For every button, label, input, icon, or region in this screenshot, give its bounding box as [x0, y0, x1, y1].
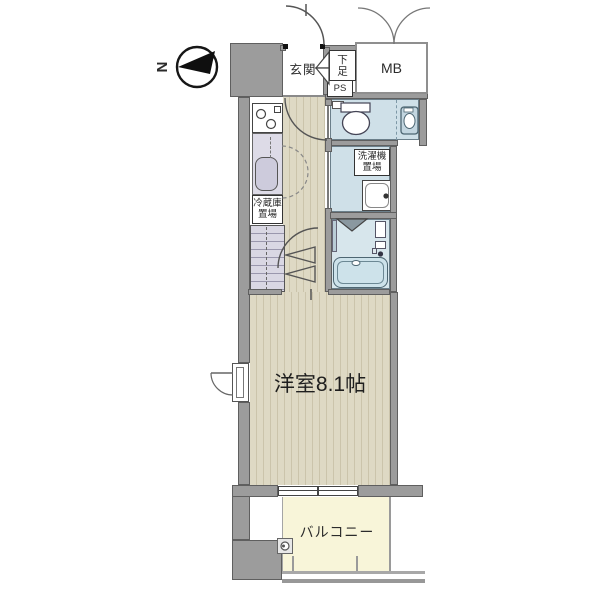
entrance-door-jamb-right	[320, 44, 325, 49]
window-swing-arc	[211, 373, 233, 395]
hallway-floor	[283, 97, 325, 295]
kitchen-sink-icon	[255, 157, 278, 191]
entrance-label: 玄関	[283, 60, 323, 76]
wall-room-top-right	[328, 289, 390, 295]
wall-hall-a	[325, 99, 332, 106]
bathtub-inner	[337, 261, 384, 284]
refrigerator-label-line2: 置場	[258, 209, 277, 220]
meter-box-door-right-arc	[394, 8, 430, 44]
closet	[250, 225, 285, 292]
meter-box: MB	[355, 42, 428, 94]
balcony-railing	[282, 571, 425, 574]
refrigerator-label-line1: 冷蔵庫	[253, 198, 282, 209]
closet-dash-line	[266, 227, 267, 290]
compass-circle	[177, 47, 217, 87]
stove-grill-icon	[274, 106, 281, 113]
main-room-label-text: 洋室8.1帖	[274, 368, 366, 398]
washing-machine-space: 洗濯機 置場	[354, 149, 390, 176]
pipe-space-label: PS	[334, 83, 347, 94]
meter-box-door-left-arc	[358, 8, 394, 44]
balcony-post-right	[356, 556, 358, 572]
bath-cabinet-icon	[375, 221, 386, 238]
shoe-cabinet-label: 下足	[335, 54, 350, 77]
washing-machine-label-line2: 置場	[362, 162, 381, 173]
wall-hall-b	[325, 138, 332, 152]
wall-left-upper	[238, 97, 250, 363]
refrigerator-space: 冷蔵庫 置場	[252, 195, 283, 224]
compass-needle-icon	[178, 51, 215, 74]
wall-room-top-left	[248, 289, 282, 295]
left-window-inner	[236, 367, 244, 398]
wall-under-room-left	[232, 485, 278, 497]
balcony-post-left	[292, 556, 294, 572]
bath-mirror-icon	[332, 220, 337, 252]
shoe-cabinet: 下足	[329, 50, 356, 81]
entrance-step-line	[283, 95, 325, 97]
balcony-window-tick	[317, 486, 319, 496]
wall-bottom-left-block	[232, 540, 282, 580]
meter-box-label: MB	[381, 60, 402, 76]
bath-handle-icon	[372, 248, 377, 254]
wall-right-mid	[390, 146, 397, 292]
washing-machine-label-line1: 洗濯機	[358, 151, 387, 162]
entrance-door-jamb-left	[283, 44, 288, 49]
pipe-space: PS	[327, 79, 353, 97]
compass-north-label: N	[152, 57, 172, 77]
entrance-label-text: 玄関	[289, 59, 316, 78]
balcony-label: バルコニー	[282, 523, 392, 541]
wall-hall-c	[325, 208, 332, 292]
counter-dash-line	[270, 137, 271, 158]
toilet-shelf-icon	[332, 101, 344, 109]
balcony-railing-outer	[282, 579, 425, 583]
floor-plan: 冷蔵庫 置場 洗濯機 置場 MB PS	[0, 0, 600, 600]
wall-left-lower	[238, 402, 250, 485]
wall-toilet-laundry	[325, 140, 398, 146]
wall-top-left-block	[230, 43, 283, 97]
wall-right-toilet	[419, 99, 427, 146]
wall-under-room-right	[358, 485, 423, 497]
balcony-label-text: バルコニー	[300, 522, 375, 542]
toilet-dash-line	[396, 100, 397, 140]
wall-laundry-bath	[330, 212, 397, 219]
wall-right-room	[390, 292, 398, 485]
north-letter: N	[154, 62, 171, 73]
main-room-label: 洋室8.1帖	[250, 370, 390, 396]
washer-pan-inner	[365, 183, 389, 208]
entrance-door-arc	[286, 6, 324, 45]
